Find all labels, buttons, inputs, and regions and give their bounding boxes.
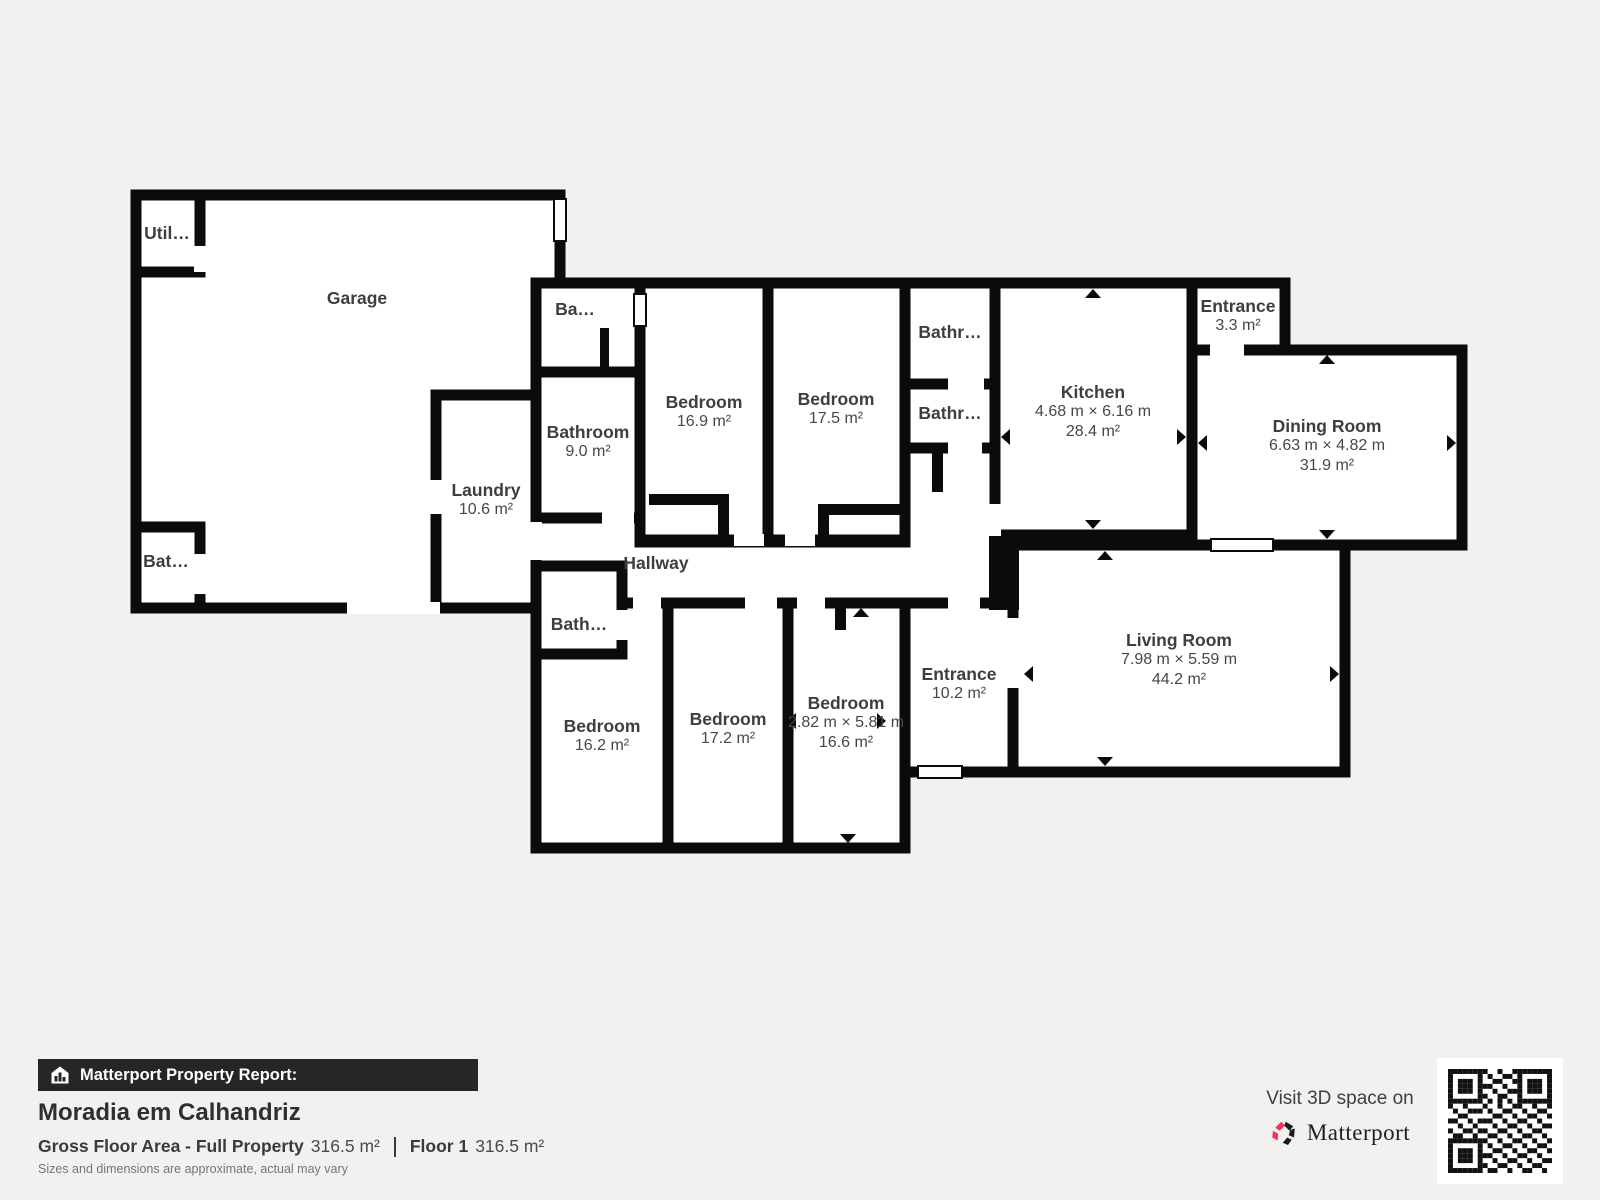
disclaimer-text: Sizes and dimensions are approximate, ac…	[38, 1162, 348, 1176]
door-bathroom9	[602, 512, 634, 524]
door-bedroom162	[633, 597, 661, 609]
door-bedroom169	[734, 534, 764, 546]
matterport-logo: Matterport	[1255, 1118, 1425, 1148]
qr-code-pattern	[1448, 1069, 1552, 1173]
visit-3d-cta: Visit 3D space on Matterport	[1255, 1088, 1425, 1148]
room-entrance-102	[905, 603, 1013, 772]
room-bathroom-b	[905, 384, 995, 448]
door-bathrooms-ab	[948, 378, 984, 390]
room-laundry	[436, 395, 536, 608]
room-kitchen	[995, 283, 1192, 535]
floorplan-drawing	[0, 0, 1600, 1200]
room-bathroom-9	[536, 372, 640, 518]
door-entrance102-living	[1007, 618, 1019, 688]
floor-label: Floor 1	[410, 1136, 468, 1157]
door-bedroom166	[797, 597, 825, 609]
room-bathroom-small-top	[536, 283, 640, 372]
room-living	[1013, 545, 1345, 772]
wall-nook-bedroom169-h	[649, 494, 729, 505]
room-bathroom-small-bottom	[536, 566, 622, 654]
room-entrance-33	[1192, 283, 1285, 350]
gfa-label: Gross Floor Area - Full Property	[38, 1136, 304, 1157]
wall-stub-corridor	[932, 450, 943, 492]
report-bar: Matterport Property Report:	[38, 1059, 478, 1091]
wall-stub-bedroom166	[835, 600, 846, 630]
door-garage	[347, 602, 440, 614]
room-bedroom-172	[668, 603, 788, 848]
door-bedroom175	[785, 534, 815, 546]
visit-3d-text: Visit 3D space on	[1255, 1088, 1425, 1110]
window-dining-living	[1211, 539, 1273, 551]
room-utility	[136, 195, 200, 272]
house-chart-icon	[50, 1065, 70, 1085]
wall-nook-bedroom175-h	[818, 504, 905, 515]
door-utility	[194, 246, 206, 272]
room-bathroom-a	[905, 283, 995, 384]
wall-nook-bedroom169-v	[718, 494, 729, 540]
floor-value: 316.5 m²	[475, 1136, 544, 1157]
property-title: Moradia em Calhandriz	[38, 1099, 301, 1127]
room-bedroom-175	[768, 283, 905, 540]
matterport-wordmark: Matterport	[1307, 1120, 1410, 1146]
door-kitchen	[989, 504, 1001, 536]
room-bathroom-garage	[136, 527, 200, 608]
matterport-burst-icon	[1270, 1118, 1300, 1148]
door-bedroom172	[745, 597, 777, 609]
divider	[394, 1137, 396, 1157]
qr-code	[1437, 1058, 1563, 1184]
gfa-value: 316.5 m²	[311, 1136, 380, 1157]
wall-nook-bedroom175-v	[818, 504, 829, 540]
wall-filler-living-corner	[989, 530, 1019, 610]
door-laundry-garage	[430, 480, 442, 514]
window-garage	[554, 199, 566, 241]
door-bathroom-b	[948, 442, 982, 454]
report-bar-label: Matterport Property Report:	[80, 1066, 297, 1085]
window-bathroom-small-top	[634, 294, 646, 326]
door-bathroom-small-bottom	[616, 610, 628, 640]
window-entrance102	[918, 766, 962, 778]
door-laundry-hallway	[530, 522, 542, 560]
area-summary: Gross Floor Area - Full Property 316.5 m…	[38, 1136, 544, 1157]
door-entrance102	[948, 597, 980, 609]
room-dining	[1192, 350, 1462, 545]
wall-stub-bathroom-top	[600, 328, 609, 372]
door-bathroom-garage	[194, 554, 206, 594]
room-bedroom-166	[788, 603, 905, 848]
matterport-floorplan-page: Util… Garage Bat… Laundry 10.6 m² Ba… Ba…	[0, 0, 1600, 1200]
door-entrance33	[1210, 344, 1244, 356]
